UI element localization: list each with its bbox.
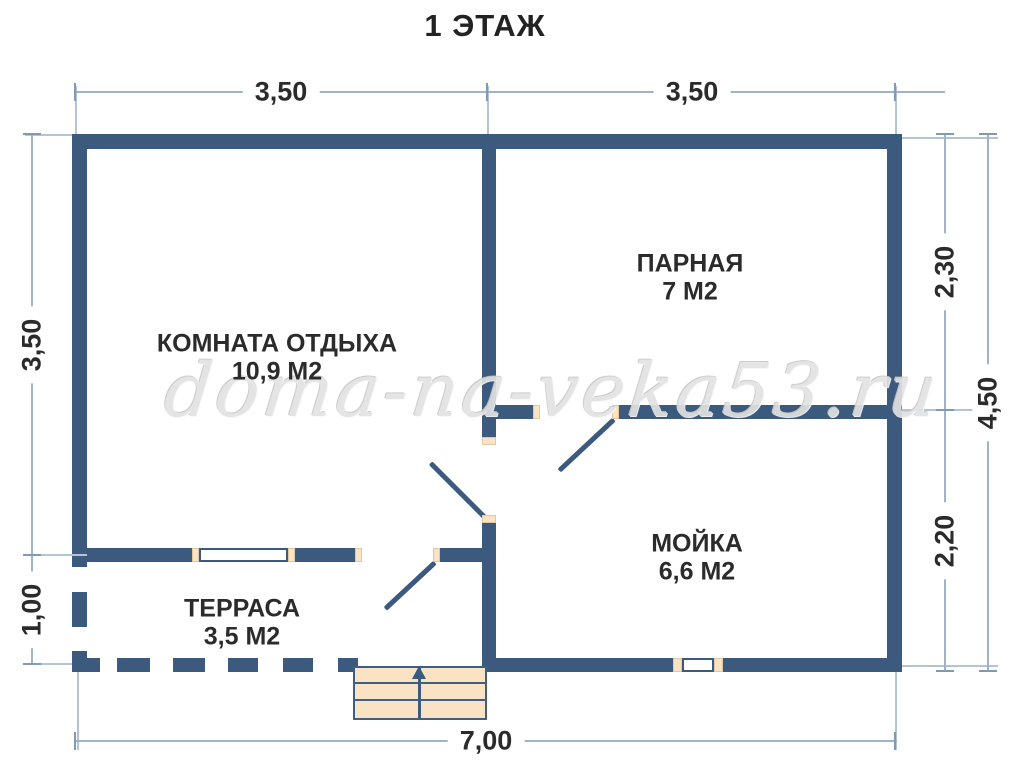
- dimension-tick: [74, 732, 76, 750]
- page-title: 1 ЭТАЖ: [424, 8, 545, 44]
- dimension-tick: [23, 554, 41, 556]
- door-swing-rest-room: [429, 461, 487, 519]
- window-jamb: [714, 658, 723, 672]
- terrace-dash: [283, 658, 313, 672]
- door-jamb: [482, 437, 496, 445]
- room-label-moyka: МОЙКА 6,6 М2: [651, 531, 743, 586]
- dimension-tick: [894, 83, 896, 101]
- dimension-tick: [936, 133, 954, 135]
- dimension-line-overshoot: [897, 91, 945, 93]
- terrace-dash: [228, 658, 258, 672]
- room-label-rest-room: КОМНАТА ОТДЫХА 10,9 М2: [157, 331, 397, 386]
- dimension-right-upper: 2,30: [930, 234, 961, 311]
- room-name: ТЕРРАСА: [184, 596, 300, 624]
- room-label-parnaya: ПАРНАЯ 7 М2: [637, 251, 744, 306]
- extension-line: [902, 137, 998, 139]
- room-area: 3,5 М2: [184, 623, 300, 651]
- room-area: 7 М2: [637, 278, 744, 306]
- dimension-right-lower: 2,20: [930, 503, 961, 580]
- window-jamb: [288, 548, 295, 562]
- wall-center-lower: [482, 523, 496, 658]
- room-area: 6,6 М2: [651, 558, 743, 586]
- window-jamb: [673, 658, 682, 672]
- dimension-tick: [979, 670, 997, 672]
- terrace-dash-corner: [72, 658, 100, 672]
- window-wash-room: [682, 658, 714, 672]
- dimension-bottom-total: 7,00: [448, 726, 525, 757]
- terrace-dash: [72, 592, 87, 627]
- stairs-up-arrow-shaft: [418, 678, 421, 718]
- dimension-left-lower: 1,00: [17, 572, 48, 649]
- wall-terrace-stub: [440, 548, 482, 562]
- dimension-tick: [894, 732, 896, 750]
- door-jamb: [355, 548, 362, 562]
- dimension-right-total: 4,50: [973, 365, 1004, 442]
- stairs-up-arrow-icon: [412, 666, 426, 679]
- dimension-left-upper: 3,50: [17, 307, 48, 384]
- dimension-tick: [936, 409, 954, 411]
- dimension-tick: [979, 133, 997, 135]
- wall-left: [72, 134, 87, 567]
- terrace-dash: [117, 658, 150, 672]
- extension-line: [902, 665, 998, 667]
- window-jamb: [192, 548, 199, 562]
- room-name: ПАРНАЯ: [637, 251, 744, 279]
- dimension-line-right-inner: [944, 134, 946, 672]
- dimension-tick: [23, 133, 41, 135]
- dimension-tick: [74, 83, 76, 101]
- window-rest-room: [199, 548, 288, 562]
- dimension-tick: [936, 670, 954, 672]
- door-jamb: [433, 548, 440, 562]
- extension-line: [77, 672, 79, 750]
- room-name: КОМНАТА ОТДЫХА: [157, 331, 397, 359]
- wall-terrace-2: [295, 548, 355, 562]
- door-jamb: [482, 515, 496, 523]
- terrace-dash: [173, 658, 205, 672]
- dimension-tick: [486, 83, 488, 101]
- room-area: 10,9 М2: [157, 358, 397, 386]
- door-swing-terrace: [384, 561, 437, 611]
- room-name: МОЙКА: [651, 531, 743, 559]
- wall-top: [72, 134, 902, 149]
- dimension-tick: [23, 663, 41, 665]
- floor-plan-canvas: 1 ЭТАЖ: [0, 0, 1024, 768]
- dimension-top-right: 3,50: [654, 77, 731, 108]
- room-label-terrasa: ТЕРРАСА 3,5 М2: [184, 596, 300, 651]
- wall-terrace-1: [87, 548, 192, 562]
- dimension-top-left: 3,50: [243, 77, 320, 108]
